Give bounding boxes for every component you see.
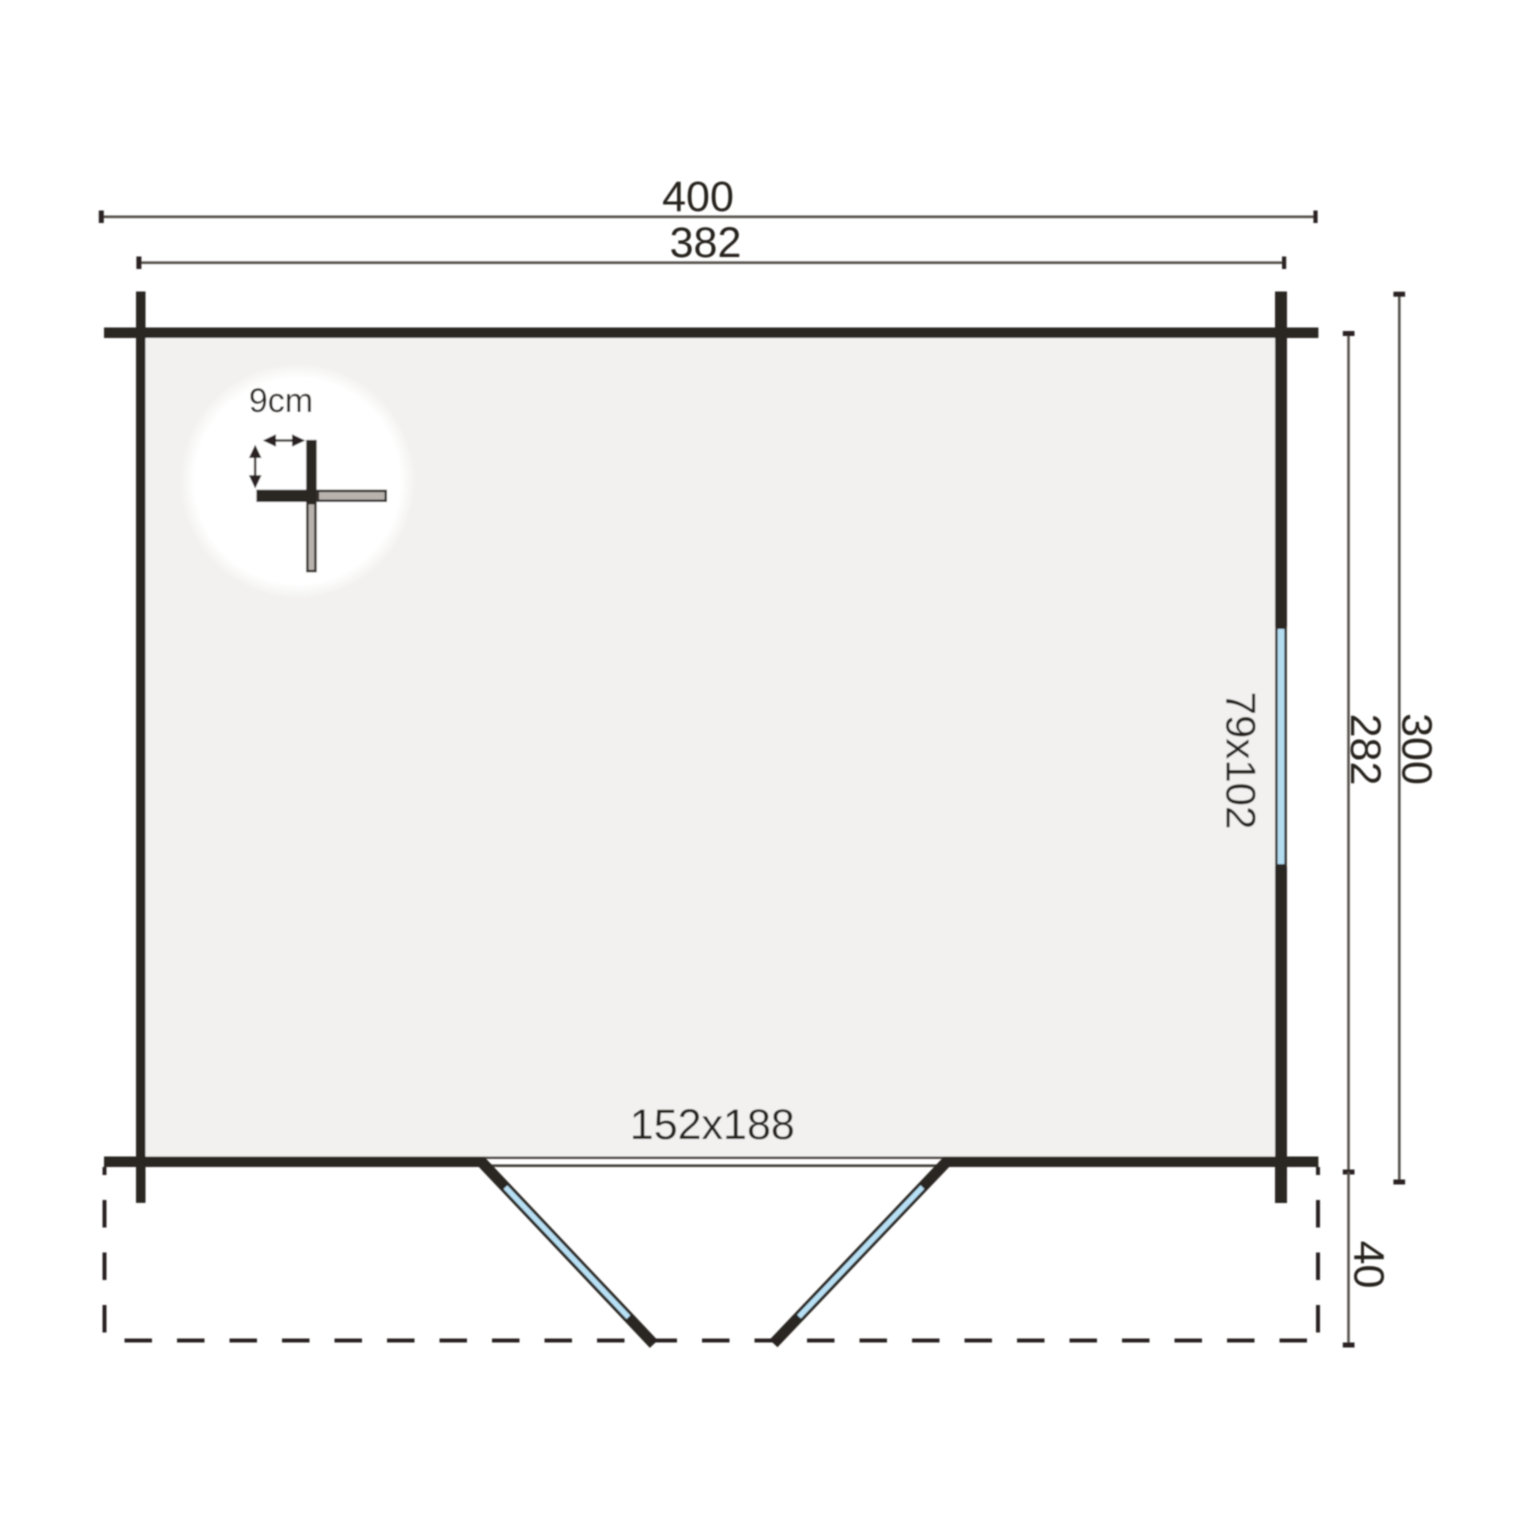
svg-text:152x188: 152x188 xyxy=(630,1101,795,1149)
svg-text:400: 400 xyxy=(662,173,734,221)
svg-text:40: 40 xyxy=(1345,1241,1393,1289)
svg-text:9cm: 9cm xyxy=(249,382,313,420)
svg-text:282: 282 xyxy=(1341,714,1389,786)
svg-text:382: 382 xyxy=(670,219,742,267)
svg-text:300: 300 xyxy=(1393,713,1441,785)
svg-text:79x102: 79x102 xyxy=(1218,692,1265,830)
